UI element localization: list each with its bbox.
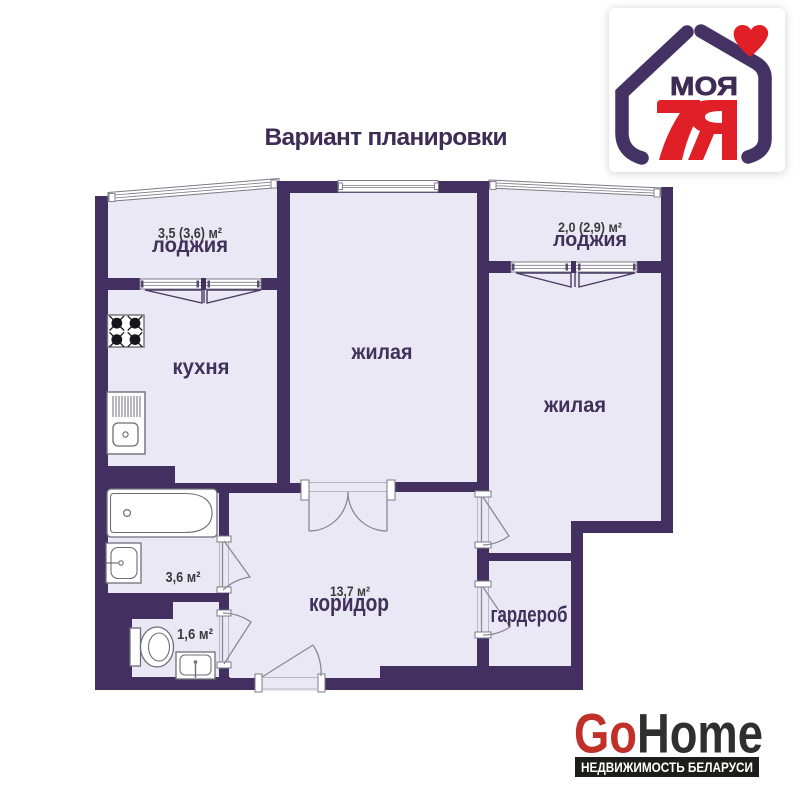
svg-text:лоджия: лоджия <box>152 234 228 257</box>
svg-text:гардероб: гардероб <box>491 602 568 627</box>
svg-text:1,6 м²: 1,6 м² <box>177 626 213 643</box>
svg-text:лоджия: лоджия <box>553 229 627 251</box>
svg-text:кухня: кухня <box>173 356 230 379</box>
svg-text:коридор: коридор <box>309 590 389 617</box>
svg-text:жилая: жилая <box>543 394 606 417</box>
svg-text:жилая: жилая <box>351 341 413 364</box>
svg-text:Вариант планировки: Вариант планировки <box>265 124 508 151</box>
svg-text:3,6 м²: 3,6 м² <box>166 569 201 586</box>
